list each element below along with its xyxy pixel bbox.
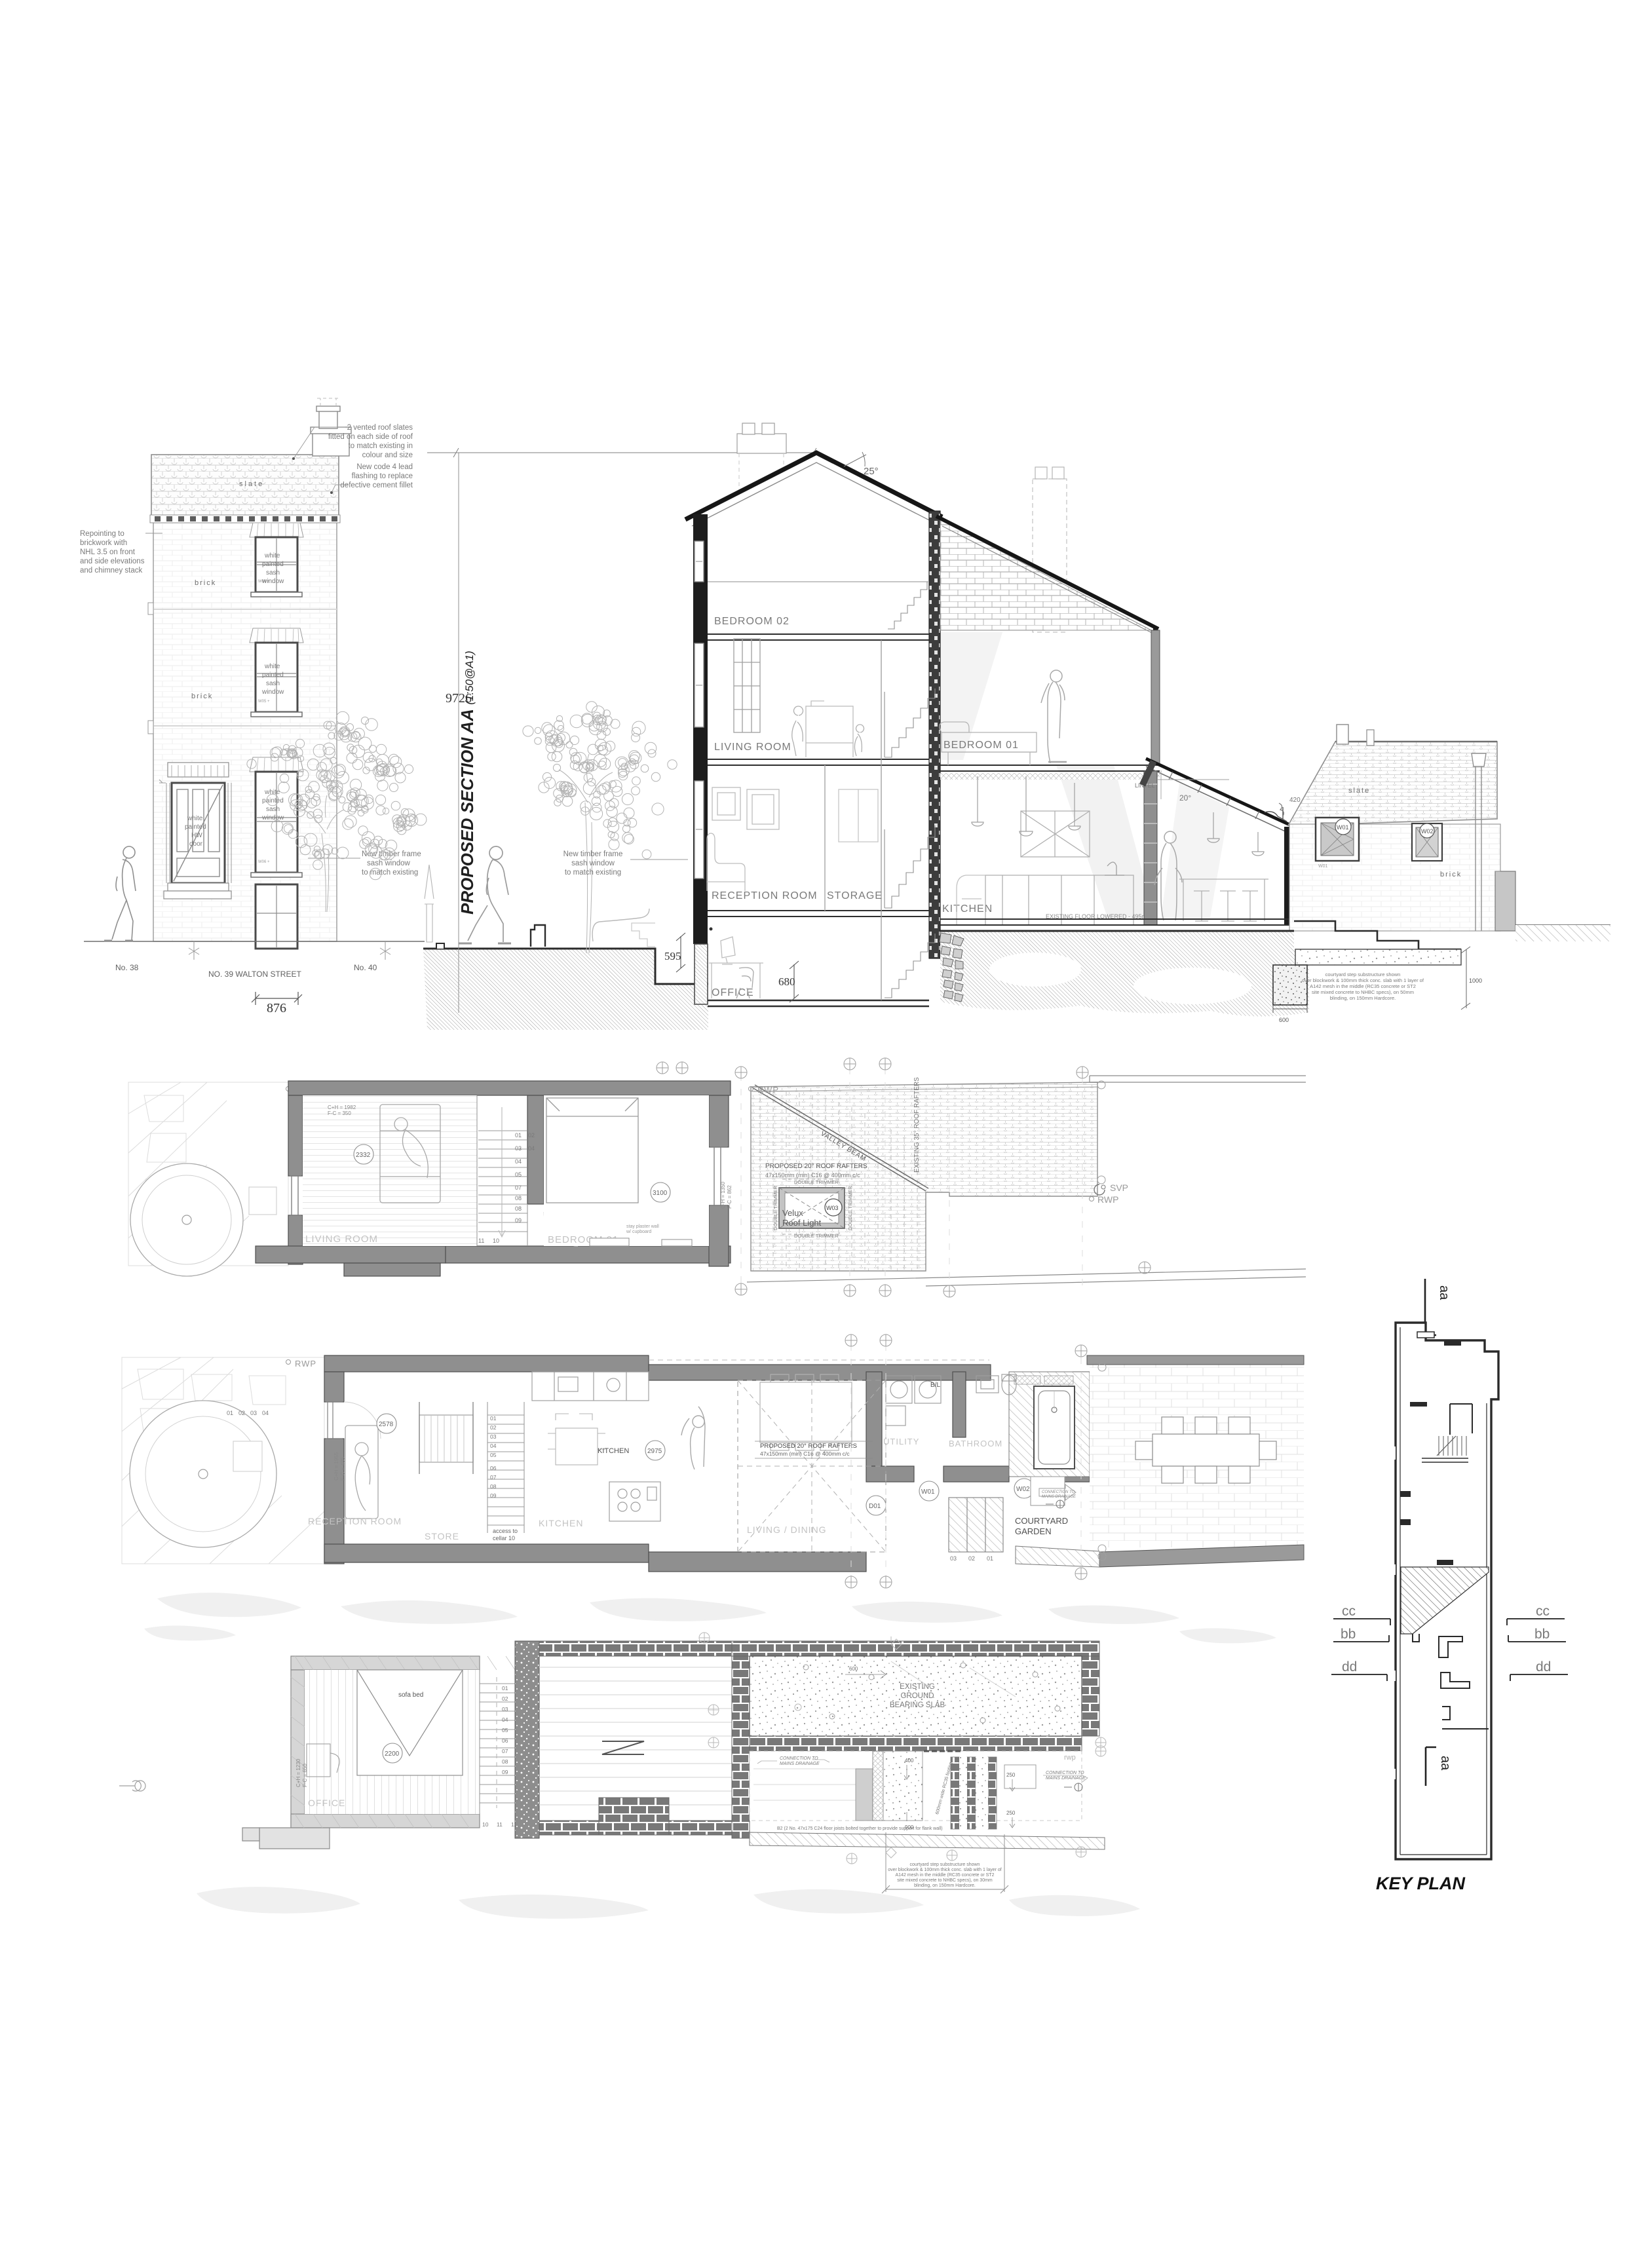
svg-text:05: 05: [515, 1171, 522, 1178]
svg-text:2975: 2975: [647, 1448, 662, 1455]
svg-text:SVP: SVP: [1110, 1182, 1128, 1193]
svg-text:20°: 20°: [1179, 793, 1191, 803]
svg-text:white: white: [264, 789, 280, 796]
svg-text:01: 01: [490, 1415, 497, 1422]
svg-text:sofa bed: sofa bed: [398, 1692, 423, 1699]
svg-text:to match existing: to match existing: [565, 869, 621, 877]
svg-text:07: 07: [490, 1474, 497, 1481]
svg-text:08: 08: [515, 1205, 522, 1212]
svg-text:W03: W03: [826, 1205, 839, 1211]
svg-text:brickwork with: brickwork with: [80, 539, 127, 547]
svg-text:05: 05: [490, 1452, 497, 1458]
svg-text:04: 04: [490, 1443, 497, 1449]
svg-text:aa: aa: [1437, 1285, 1451, 1300]
svg-text:11: 11: [497, 1821, 503, 1828]
svg-text:STORE: STORE: [425, 1531, 459, 1541]
svg-text:sash: sash: [266, 680, 280, 687]
svg-text:defective cement fillet: defective cement fillet: [340, 482, 413, 489]
svg-text:RECEPTION ROOM: RECEPTION ROOM: [308, 1516, 402, 1526]
svg-text:sash window: sash window: [571, 860, 615, 867]
svg-text:B2 (2 No. 47x175 C24 floor jo: B2 (2 No. 47x175 C24 floor joists bolted…: [777, 1826, 943, 1831]
svg-text:flashing to replace: flashing to replace: [352, 472, 413, 480]
svg-text:03: 03: [515, 1145, 522, 1152]
svg-text:08: 08: [490, 1483, 497, 1490]
svg-text:brick: brick: [1440, 871, 1462, 879]
svg-text:2 vented roof slates: 2 vented roof slates: [347, 424, 413, 432]
svg-text:RWP: RWP: [295, 1359, 316, 1369]
svg-text:02: 02: [238, 1410, 245, 1416]
svg-text:DOUBLE TRIMMER: DOUBLE TRIMMER: [847, 1186, 853, 1230]
svg-text:C-H = 1350: C-H = 1350: [720, 1181, 726, 1209]
svg-text:window: window: [261, 578, 284, 585]
svg-text:courtyard step substructure sh: courtyard step substructure shown: [1325, 972, 1401, 977]
svg-text:blinding, on 150mm Hardcore.: blinding, on 150mm Hardcore.: [1330, 995, 1396, 1001]
svg-text:sash: sash: [266, 569, 280, 576]
svg-text:04: 04: [528, 1145, 535, 1152]
svg-text:07: 07: [515, 1184, 522, 1191]
svg-text:MAINS DRAINAGE: MAINS DRAINAGE: [1042, 1495, 1076, 1499]
svg-text:W01: W01: [1337, 824, 1349, 831]
svg-text:01: 01: [227, 1410, 233, 1416]
svg-text:No. 40: No. 40: [354, 963, 377, 972]
svg-text:C+H = 1955: C+H = 1955: [333, 1452, 339, 1481]
svg-text:09: 09: [490, 1492, 497, 1499]
svg-text:white: white: [264, 663, 280, 670]
svg-text:site mixed concrete to NHBC sp: site mixed concrete to NHBC specs), on 3…: [897, 1878, 993, 1883]
svg-text:47x150mm (min) C16 @ 400mm c/c: 47x150mm (min) C16 @ 400mm c/c: [765, 1172, 860, 1179]
svg-text:NO. 39 WALTON STREET: NO. 39 WALTON STREET: [208, 970, 301, 979]
svg-text:06: 06: [490, 1465, 497, 1471]
svg-text:OFFICE: OFFICE: [308, 1798, 345, 1808]
svg-text:07: 07: [502, 1748, 508, 1754]
svg-text:W01: W01: [921, 1488, 935, 1496]
svg-text:UTILITY: UTILITY: [883, 1437, 919, 1446]
svg-text:window: window: [261, 689, 284, 696]
svg-text:10: 10: [482, 1821, 489, 1828]
svg-text:BEDROOM 01: BEDROOM 01: [943, 740, 1019, 751]
svg-text:03: 03: [950, 1555, 957, 1562]
svg-text:05: 05: [502, 1727, 508, 1733]
svg-text:595: 595: [664, 950, 681, 962]
svg-text:W06 +: W06 +: [258, 860, 270, 864]
svg-text:BEDROOM 02: BEDROOM 02: [714, 616, 790, 627]
svg-text:LIVING ROOM: LIVING ROOM: [714, 742, 791, 753]
svg-text:D01: D01: [869, 1503, 881, 1510]
svg-text:PROPOSED 20° ROOF RAFTERS: PROPOSED 20° ROOF RAFTERS: [760, 1443, 857, 1450]
svg-text:04: 04: [502, 1716, 508, 1723]
svg-text:Roof Light: Roof Light: [782, 1218, 822, 1228]
svg-text:over blockwork & 100mm thick c: over blockwork & 100mm thick conc. slab …: [1302, 977, 1424, 983]
svg-text:3100: 3100: [653, 1190, 668, 1197]
svg-text:New code 4 lead: New code 4 lead: [356, 463, 413, 471]
svg-text:courtyard step substructure sh: courtyard step substructure shown: [910, 1862, 980, 1867]
svg-text:02: 02: [528, 1132, 535, 1139]
svg-text:COURTYARD: COURTYARD: [1015, 1516, 1068, 1526]
svg-text:600: 600: [849, 1666, 858, 1672]
svg-text:2332: 2332: [356, 1152, 371, 1159]
svg-text:painted: painted: [262, 561, 284, 568]
svg-text:STORAGE: STORAGE: [827, 890, 883, 901]
svg-text:A142 mesh in the middle (RC35: A142 mesh in the middle (RC35 concrete o…: [1310, 983, 1416, 989]
svg-text:dd: dd: [1536, 1659, 1551, 1674]
svg-text:painted: painted: [262, 797, 284, 804]
svg-text:A142 mesh in the middle (RC35: A142 mesh in the middle (RC35 concrete o…: [896, 1873, 995, 1878]
svg-text:2578: 2578: [379, 1421, 394, 1428]
svg-text:01: 01: [502, 1685, 508, 1692]
svg-text:BEARING SLAB: BEARING SLAB: [890, 1701, 945, 1709]
svg-text:09: 09: [502, 1769, 508, 1775]
svg-text:MAINS DRAINAGE: MAINS DRAINAGE: [1046, 1776, 1086, 1781]
svg-text:KITCHEN: KITCHEN: [598, 1447, 629, 1455]
svg-text:MAINS DRAINAGE: MAINS DRAINAGE: [780, 1762, 820, 1766]
svg-text:03: 03: [490, 1433, 497, 1440]
svg-text:to match existing in: to match existing in: [349, 442, 413, 450]
svg-text:F-C = 650: F-C = 650: [302, 1764, 308, 1787]
svg-text:250: 250: [1006, 1810, 1016, 1816]
svg-text:slate: slate: [239, 480, 264, 488]
svg-text:400: 400: [905, 1758, 914, 1764]
svg-text:06: 06: [502, 1737, 508, 1744]
svg-text:04: 04: [515, 1158, 522, 1165]
svg-text:01: 01: [987, 1555, 993, 1562]
svg-text:2200: 2200: [385, 1750, 400, 1758]
svg-text:brick: brick: [195, 579, 216, 587]
svg-text:over blockwork & 100mm thick c: over blockwork & 100mm thick conc. slab …: [888, 1868, 1002, 1872]
svg-text:fitted on each side of ro: fitted on each side of roof: [328, 433, 413, 441]
svg-text:03: 03: [250, 1410, 257, 1416]
svg-text:stay plaster wall: stay plaster wall: [626, 1224, 659, 1229]
svg-text:1000: 1000: [1469, 977, 1482, 984]
svg-text:and chimney stack: and chimney stack: [80, 567, 142, 575]
svg-text:access to: access to: [493, 1528, 518, 1534]
svg-text:HW: HW: [191, 832, 202, 839]
svg-text:09: 09: [515, 1217, 522, 1224]
svg-text:F-C = 862: F-C = 862: [727, 1185, 733, 1209]
svg-text:GROUND: GROUND: [900, 1692, 934, 1700]
svg-text:08: 08: [515, 1195, 522, 1201]
svg-text:bb: bb: [1341, 1627, 1356, 1642]
svg-text:47x150mm (min) C16 @ 400mm c/c: 47x150mm (min) C16 @ 400mm c/c: [760, 1450, 850, 1457]
svg-text:F-C = 485: F-C = 485: [340, 1457, 346, 1481]
svg-text:W01: W01: [1318, 864, 1328, 869]
svg-text:GARDEN: GARDEN: [1015, 1526, 1052, 1536]
svg-text:420: 420: [1289, 797, 1301, 804]
svg-text:cc: cc: [1342, 1604, 1356, 1619]
svg-text:RWP: RWP: [1097, 1194, 1118, 1205]
svg-text:DOUBLE TRIMMER: DOUBLE TRIMMER: [794, 1233, 839, 1239]
svg-text:painted: painted: [262, 671, 284, 679]
svg-text:PROPOSED 20° ROOF RAFTERS: PROPOSED 20° ROOF RAFTERS: [765, 1163, 867, 1170]
svg-text:white: white: [264, 552, 280, 559]
svg-text:LIVING / DINING: LIVING / DINING: [747, 1524, 827, 1535]
svg-text:cellar 10: cellar 10: [493, 1535, 515, 1541]
svg-text:08: 08: [502, 1758, 508, 1765]
svg-text:painted: painted: [185, 823, 206, 831]
svg-text:04: 04: [262, 1410, 269, 1416]
svg-text:03: 03: [502, 1706, 508, 1712]
svg-text:cc: cc: [1536, 1604, 1550, 1619]
svg-text:rwp: rwp: [1064, 1754, 1076, 1762]
svg-text:bb: bb: [1534, 1627, 1550, 1642]
svg-text:02: 02: [968, 1555, 975, 1562]
svg-text:W02: W02: [1421, 828, 1434, 835]
svg-text:sash: sash: [266, 806, 280, 813]
svg-text:Velux: Velux: [782, 1208, 803, 1218]
svg-text:CONNECTION TO: CONNECTION TO: [1042, 1490, 1075, 1494]
svg-text:600: 600: [1279, 1017, 1289, 1023]
svg-text:white: white: [187, 815, 203, 822]
svg-text:slate: slate: [1348, 787, 1370, 795]
svg-text:aa: aa: [1438, 1756, 1453, 1771]
svg-text:door: door: [189, 841, 203, 848]
svg-text:Repointing to: Repointing to: [80, 530, 124, 538]
svg-text:C+H = 1982: C+H = 1982: [328, 1105, 356, 1110]
svg-text:LIVING ROOM: LIVING ROOM: [305, 1234, 378, 1245]
svg-text:C+H = 1230: C+H = 1230: [295, 1758, 301, 1787]
svg-text:site mixed concrete to NHBC sp: site mixed concrete to NHBC specs), on 5…: [1312, 989, 1414, 995]
svg-text:CONNECTION TO: CONNECTION TO: [1046, 1771, 1084, 1775]
svg-text:B/L: B/L: [930, 1382, 940, 1389]
svg-text:10: 10: [493, 1238, 499, 1244]
svg-text:NHL 3.5 on front: NHL 3.5 on front: [80, 548, 136, 556]
svg-text:DOUBLE TRIMMER: DOUBLE TRIMMER: [794, 1179, 839, 1185]
svg-text:blinding, on 150mm Hardcore.: blinding, on 150mm Hardcore.: [914, 1883, 976, 1888]
svg-text:CONNECTION TO: CONNECTION TO: [780, 1756, 818, 1761]
svg-text:02: 02: [502, 1695, 508, 1702]
svg-text:BATHROOM: BATHROOM: [949, 1439, 1002, 1448]
svg-text:No. 38: No. 38: [115, 963, 139, 972]
svg-text:W05 +: W05 +: [258, 700, 270, 704]
svg-text:KEY PLAN: KEY PLAN: [1376, 1874, 1466, 1893]
svg-text:11: 11: [478, 1238, 484, 1244]
svg-text:250: 250: [1006, 1772, 1016, 1778]
svg-text:dd: dd: [1342, 1659, 1357, 1674]
svg-text:New timber frame: New timber frame: [563, 850, 623, 858]
svg-text:colour and size: colour and size: [362, 451, 413, 459]
svg-text:DOUBLE TRIMMER: DOUBLE TRIMMER: [772, 1186, 778, 1230]
svg-text:EXISTING 35° ROOF RAFTERS: EXISTING 35° ROOF RAFTERS: [913, 1077, 921, 1173]
svg-text:25°: 25°: [864, 466, 879, 477]
svg-text:window: window: [261, 814, 284, 822]
svg-text:brick: brick: [191, 692, 213, 700]
svg-text:876: 876: [267, 1001, 286, 1015]
svg-text:and side elevations: and side elevations: [80, 558, 145, 565]
svg-text:01: 01: [515, 1132, 522, 1139]
svg-text:02: 02: [490, 1424, 497, 1431]
svg-text:KITCHEN: KITCHEN: [539, 1518, 583, 1528]
svg-text:w/ cupboard: w/ cupboard: [626, 1230, 651, 1234]
svg-text:RECEPTION ROOM: RECEPTION ROOM: [712, 890, 818, 901]
svg-text:sash window: sash window: [367, 860, 411, 867]
svg-text:RWP: RWP: [757, 1085, 779, 1095]
svg-text:W02: W02: [1016, 1486, 1030, 1493]
svg-text:680: 680: [778, 975, 795, 988]
svg-text:F-C = 350: F-C = 350: [328, 1110, 351, 1116]
